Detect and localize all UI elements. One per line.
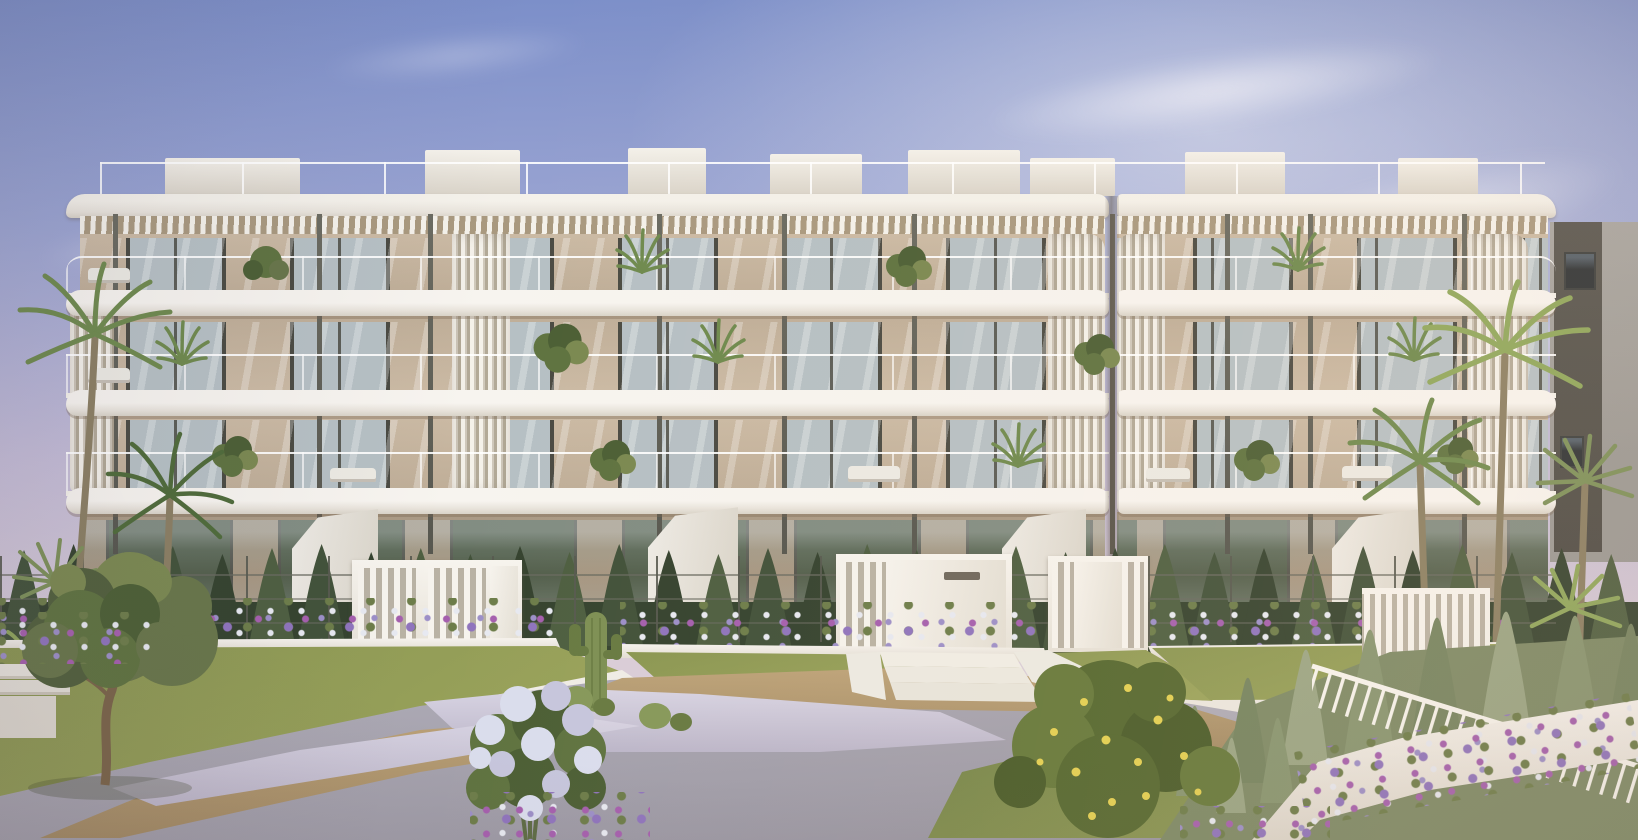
architectural-render (0, 0, 1638, 840)
flower-accent-foreground (1180, 806, 1330, 840)
lavender-bed-left (0, 612, 150, 664)
garden (0, 0, 1638, 840)
flower-accent-foreground (470, 792, 650, 840)
